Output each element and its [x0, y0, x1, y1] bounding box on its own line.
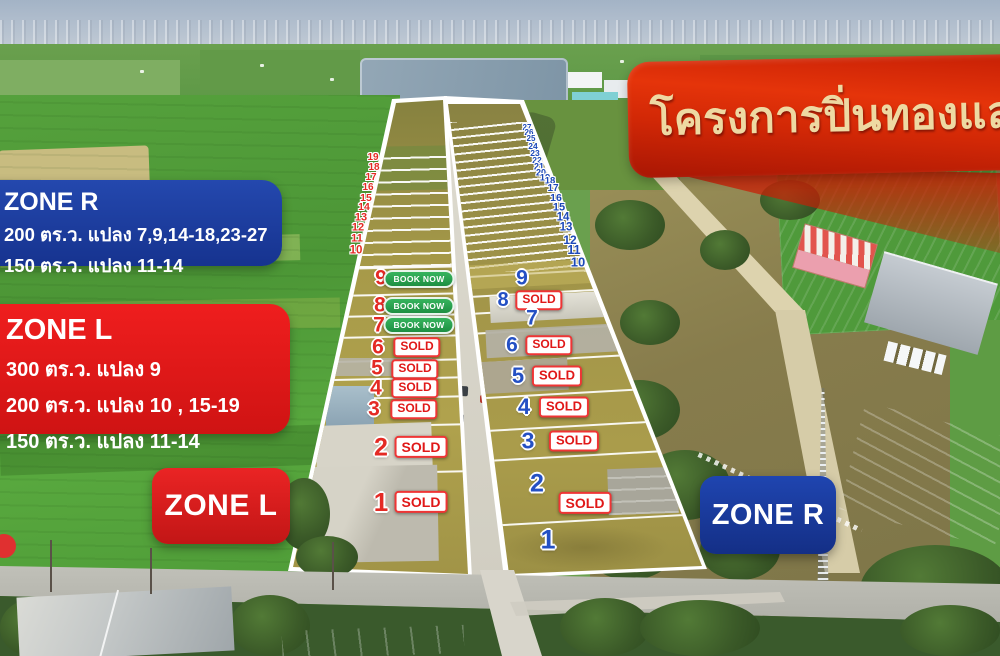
plot-right-6-status-badge: SOLD [525, 335, 572, 355]
zone-r-badge: ZONE R [700, 476, 836, 554]
zone-l-info-box: ZONE L 300 ตร.ว. แปลง 9 200 ตร.ว. แปลง 1… [0, 304, 290, 434]
plot-left-4-number: 4 [370, 378, 382, 399]
plot-right-3-number: 3 [522, 430, 535, 453]
aerial-site-map: 9BOOK NOW8BOOK NOW7BOOK NOW6SOLD5SOLD4SO… [0, 0, 1000, 656]
zone-l-info-title: ZONE L [6, 314, 280, 347]
plot-right-1-number: 1 [540, 527, 555, 554]
plot-left-3-number: 3 [368, 399, 380, 420]
plot-right-9-number: 9 [516, 268, 528, 289]
zone-l-info-line: 200 ตร.ว. แปลง 10 , 15-19 [6, 389, 280, 421]
plot-left-6-number: 6 [372, 337, 384, 358]
plot-right-3-status-badge: SOLD [549, 431, 599, 452]
plot-right-2-status-badge: SOLD [559, 492, 612, 514]
plot-left-10-number-small: 10 [350, 245, 363, 257]
plot-left-5-status-badge: SOLD [391, 359, 438, 379]
plot-right-4-number: 4 [518, 396, 530, 418]
plot-right-2-number: 2 [530, 472, 544, 497]
plot-right-4-status-badge: SOLD [539, 397, 589, 418]
zone-r-info-line: 150 ตร.ว. แปลง 11-14 [4, 252, 272, 281]
zone-r-info-line: 200 ตร.ว. แปลง 7,9,14-18,23-27 [4, 221, 272, 250]
plot-left-1-status-badge: SOLD [395, 491, 448, 513]
zone-r-info-box: ZONE R 200 ตร.ว. แปลง 7,9,14-18,23-27 15… [0, 180, 282, 266]
banner-title: โครงการปิ่นทองแลนด์ [627, 76, 1000, 155]
zone-r-info-title: ZONE R [4, 188, 272, 217]
plot-right-8-number: 8 [497, 290, 508, 310]
plot-left-5-number: 5 [371, 358, 383, 379]
plot-right-10-number-small: 10 [571, 256, 585, 269]
plot-left-8-status-badge: BOOK NOW [383, 297, 454, 315]
zone-l-info-line: 300 ตร.ว. แปลง 9 [6, 353, 280, 385]
plot-left-9-status-badge: BOOK NOW [383, 270, 454, 288]
plot-right-6-number: 6 [506, 335, 518, 356]
plot-left-1-number: 1 [374, 489, 388, 515]
plot-left-7-status-badge: BOOK NOW [383, 316, 454, 334]
zone-l-info-line: 150 ตร.ว. แปลง 11-14 [6, 425, 280, 457]
title-banner: โครงการปิ่นทองแลนด์ [627, 54, 1000, 178]
plot-left-11-number-small: 11 [351, 234, 363, 245]
plot-left-2-number: 2 [374, 436, 388, 461]
plot-left-4-status-badge: SOLD [391, 378, 438, 398]
plot-left-3-status-badge: SOLD [390, 399, 437, 419]
plot-right-7-number: 7 [526, 308, 538, 329]
plot-right-5-number: 5 [512, 365, 524, 387]
plot-right-8-status-badge: SOLD [515, 290, 562, 310]
plot-left-2-status-badge: SOLD [395, 436, 448, 458]
plot-right-5-status-badge: SOLD [532, 366, 582, 387]
zone-l-badge: ZONE L [152, 468, 290, 544]
plot-left-6-status-badge: SOLD [393, 337, 440, 357]
